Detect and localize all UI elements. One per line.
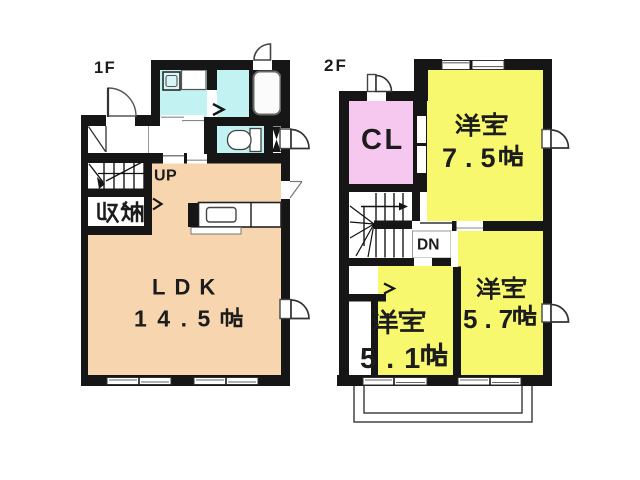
svg-text:2F: 2F — [324, 56, 348, 75]
svg-text:LDK: LDK — [152, 275, 224, 300]
svg-text:DN: DN — [417, 237, 439, 254]
svg-text:CL: CL — [361, 124, 405, 156]
svg-text:14.5: 14.5 — [134, 306, 221, 332]
svg-text:5.1: 5.1 — [360, 343, 430, 375]
svg-text:7.5: 7.5 — [442, 143, 504, 173]
svg-text:1F: 1F — [94, 59, 116, 77]
svg-text:5.7: 5.7 — [463, 304, 520, 334]
svg-text:UP: UP — [154, 168, 177, 185]
